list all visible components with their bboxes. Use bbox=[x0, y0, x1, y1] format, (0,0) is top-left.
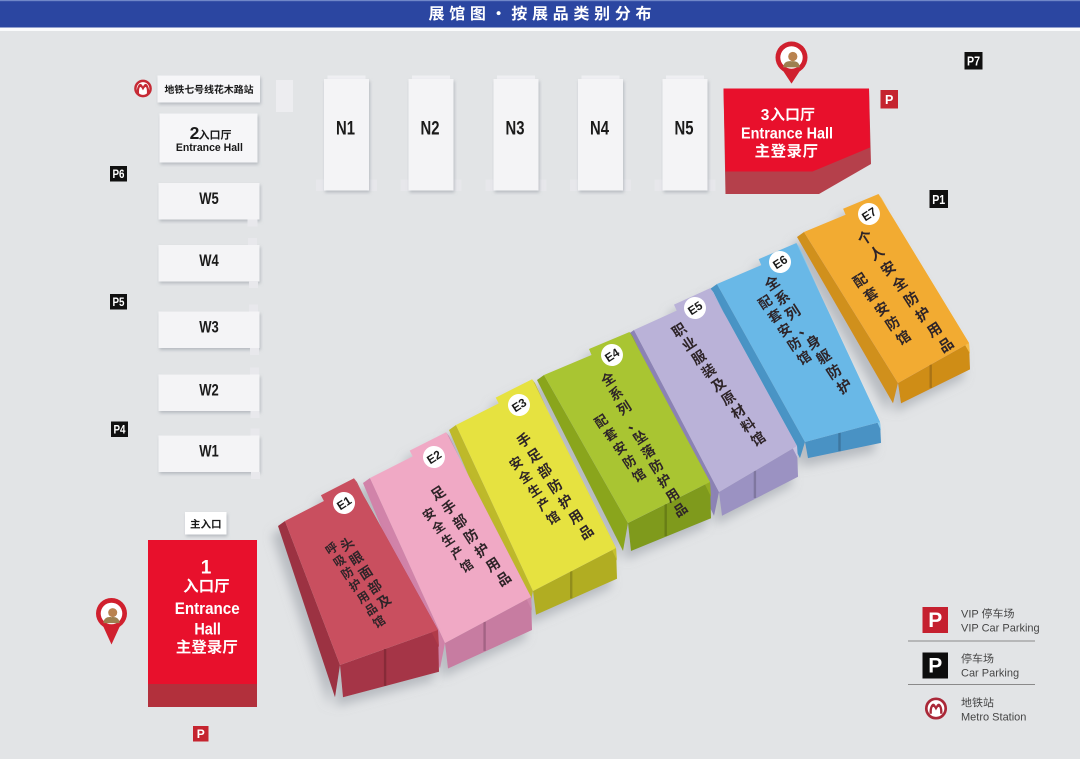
svg-text:Metro Station: Metro Station bbox=[961, 712, 1026, 724]
svg-text:P: P bbox=[197, 727, 205, 741]
svg-text:W4: W4 bbox=[199, 252, 219, 270]
svg-text:Entrance: Entrance bbox=[175, 600, 240, 618]
svg-text:P7: P7 bbox=[967, 55, 980, 69]
svg-text:P4: P4 bbox=[114, 423, 126, 437]
svg-text:N3: N3 bbox=[506, 118, 525, 140]
svg-text:P: P bbox=[885, 93, 893, 107]
svg-text:W2: W2 bbox=[199, 382, 219, 400]
svg-text:VIP Car Parking: VIP Car Parking bbox=[961, 623, 1040, 635]
svg-text:Entrance Hall: Entrance Hall bbox=[176, 142, 243, 154]
svg-text:VIP: VIP bbox=[961, 609, 979, 621]
svg-text:P5: P5 bbox=[113, 295, 125, 309]
svg-text:P: P bbox=[928, 655, 942, 678]
svg-text:N4: N4 bbox=[590, 118, 609, 140]
svg-text:P6: P6 bbox=[113, 167, 125, 181]
svg-text:Entrance Hall: Entrance Hall bbox=[741, 126, 833, 143]
svg-text:3: 3 bbox=[761, 107, 770, 124]
svg-text:2: 2 bbox=[190, 123, 200, 143]
svg-text:W5: W5 bbox=[199, 190, 219, 208]
svg-text:P: P bbox=[928, 609, 942, 632]
svg-text:W3: W3 bbox=[199, 319, 219, 337]
svg-text:N1: N1 bbox=[336, 118, 355, 140]
svg-text:P1: P1 bbox=[932, 193, 945, 207]
svg-text:N5: N5 bbox=[675, 118, 694, 140]
svg-text:N2: N2 bbox=[421, 118, 440, 140]
svg-text:1: 1 bbox=[201, 558, 212, 579]
svg-text:W1: W1 bbox=[199, 443, 219, 461]
svg-text:Car Parking: Car Parking bbox=[961, 668, 1019, 680]
svg-text:Hall: Hall bbox=[194, 621, 221, 639]
